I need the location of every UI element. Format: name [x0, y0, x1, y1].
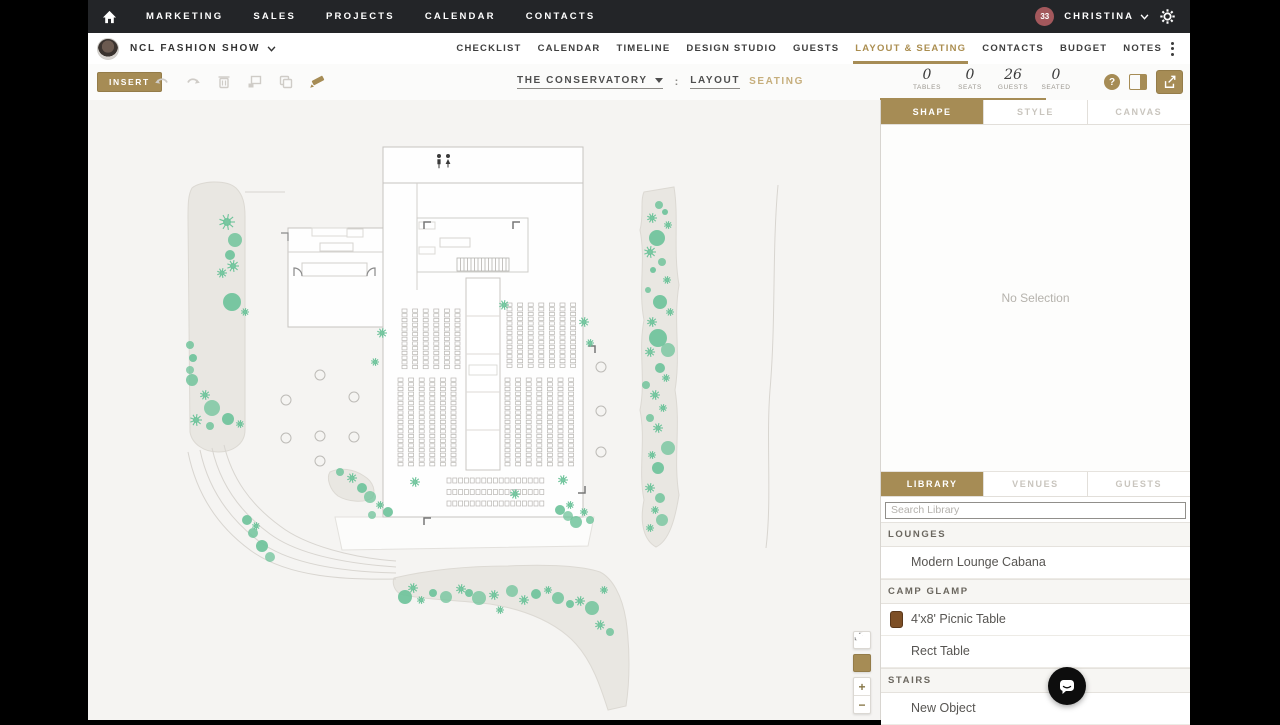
library-search-input[interactable]	[885, 502, 1186, 519]
floorplan-canvas[interactable]: + −	[88, 100, 880, 720]
annex-building[interactable]	[281, 228, 383, 327]
canvas-zoom-controls: + −	[853, 631, 871, 714]
tab-calendar[interactable]: CALENDAR	[538, 33, 601, 64]
pencil-icon	[308, 74, 325, 90]
venue-name: THE CONSERVATORY	[517, 75, 648, 86]
home-icon	[102, 10, 117, 24]
caret-down-icon	[655, 78, 663, 83]
grab-tool-button[interactable]	[853, 654, 871, 672]
tab-budget[interactable]: BUDGET	[1060, 33, 1107, 64]
separator: :	[675, 76, 679, 88]
chat-bubble-icon	[1057, 676, 1077, 696]
user-avatar-badge[interactable]: 33	[1035, 7, 1054, 26]
zoom-out-button[interactable]: −	[854, 696, 870, 713]
inspector-empty-state: No Selection	[881, 125, 1190, 472]
nav-item-calendar[interactable]: CALENDAR	[425, 11, 496, 22]
no-selection-text: No Selection	[1001, 291, 1069, 305]
layout-stats: 0 TABLES 0 SEATS 26 GUESTS 0 SEATED	[910, 68, 1073, 91]
main-nav-items: MARKETING SALES PROJECTS CALENDAR CONTAC…	[146, 11, 595, 22]
nav-item-projects[interactable]: PROJECTS	[326, 11, 395, 22]
tab-guests-library[interactable]: GUESTS	[1088, 472, 1190, 496]
pan-tool-icon	[853, 631, 865, 643]
tab-contacts[interactable]: CONTACTS	[982, 33, 1044, 64]
tab-design-studio[interactable]: DESIGN STUDIO	[686, 33, 777, 64]
arrange-button[interactable]	[243, 69, 266, 94]
main-area: + − SHAPE STYLE CANVAS No Selection LIBR…	[88, 100, 1190, 720]
duplicate-button[interactable]	[274, 69, 297, 94]
tab-shape[interactable]: SHAPE	[881, 100, 984, 124]
event-avatar[interactable]	[97, 38, 119, 60]
layout-view-link[interactable]: LAYOUT	[690, 75, 740, 89]
toolbar-right-icons: ?	[1104, 70, 1183, 94]
panel-toggle-button[interactable]	[1129, 74, 1147, 90]
venue-selector[interactable]: THE CONSERVATORY	[517, 75, 663, 89]
duplicate-icon	[279, 75, 293, 89]
user-name: CHRISTINA	[1064, 11, 1134, 22]
tab-style[interactable]: STYLE	[984, 100, 1087, 124]
redo-button[interactable]	[181, 69, 204, 94]
nav-item-marketing[interactable]: MARKETING	[146, 11, 223, 22]
runway[interactable]	[466, 278, 500, 470]
edit-icons	[150, 69, 328, 94]
chevron-down-icon	[267, 46, 276, 52]
library-item-label: 4'x8' Picnic Table	[911, 612, 1006, 626]
gear-icon[interactable]	[1159, 8, 1176, 25]
tab-library[interactable]: LIBRARY	[881, 472, 984, 496]
library-item-modern-lounge-cabana[interactable]: Modern Lounge Cabana	[881, 547, 1190, 579]
event-name: NCL FASHION SHOW	[130, 43, 260, 54]
venue-view-controls: THE CONSERVATORY : LAYOUT SEATING	[517, 64, 804, 100]
app-window: MARKETING SALES PROJECTS CALENDAR CONTAC…	[88, 0, 1190, 720]
zoom-in-button[interactable]: +	[854, 678, 870, 696]
tab-venues[interactable]: VENUES	[984, 472, 1087, 496]
library-list: LOUNGES Modern Lounge Cabana CAMP GLAMP …	[881, 522, 1190, 725]
library-search	[881, 497, 1190, 522]
event-selector[interactable]: NCL FASHION SHOW	[130, 43, 276, 54]
undo-icon	[154, 75, 170, 89]
seating-view-link[interactable]: SEATING	[749, 76, 804, 89]
library-item-picnic-table[interactable]: 4'x8' Picnic Table	[881, 604, 1190, 636]
library-section-lounges: LOUNGES	[881, 522, 1190, 547]
redo-icon	[185, 75, 201, 89]
stat-seated: 0 SEATED	[1039, 68, 1073, 91]
zoom-buttons: + −	[853, 677, 871, 714]
help-button[interactable]: ?	[1104, 74, 1120, 90]
inspector-tabs: SHAPE STYLE CANVAS	[881, 100, 1190, 125]
share-icon	[1162, 75, 1177, 89]
library-section-stairs: STAIRS	[881, 668, 1190, 693]
tab-guests[interactable]: GUESTS	[793, 33, 839, 64]
top-nav: MARKETING SALES PROJECTS CALENDAR CONTAC…	[88, 0, 1190, 33]
undo-button[interactable]	[150, 69, 173, 94]
trash-icon	[217, 74, 231, 89]
event-overflow-menu[interactable]	[1164, 40, 1180, 58]
export-button[interactable]	[1156, 70, 1183, 94]
stat-seats: 0 SEATS	[953, 68, 987, 91]
library-item-rect-table[interactable]: Rect Table	[881, 636, 1190, 668]
building-apron	[335, 517, 594, 550]
stat-tables: 0 TABLES	[910, 68, 944, 91]
event-tabs: CHECKLIST CALENDAR TIMELINE DESIGN STUDI…	[456, 33, 1162, 64]
intercom-chat-button[interactable]	[1048, 667, 1086, 705]
arrange-icon	[247, 75, 262, 89]
home-button[interactable]	[98, 6, 120, 28]
draw-button[interactable]	[305, 69, 328, 94]
right-panel: SHAPE STYLE CANVAS No Selection LIBRARY …	[880, 100, 1190, 720]
library-tabs: LIBRARY VENUES GUESTS	[881, 472, 1190, 497]
chevron-down-icon	[1140, 14, 1149, 20]
library-section-camp-glamp: CAMP GLAMP	[881, 579, 1190, 604]
picnic-table-icon	[890, 611, 903, 628]
nav-item-sales[interactable]: SALES	[253, 11, 296, 22]
nav-item-contacts[interactable]: CONTACTS	[526, 11, 596, 22]
top-nav-right: 33 CHRISTINA	[1035, 7, 1190, 26]
stat-guests: 26 GUESTS	[996, 68, 1030, 91]
tab-canvas[interactable]: CANVAS	[1088, 100, 1190, 124]
tab-timeline[interactable]: TIMELINE	[616, 33, 670, 64]
delete-button[interactable]	[212, 69, 235, 94]
canvas-toolbar: INSERT	[88, 64, 1190, 101]
tab-layout-seating[interactable]: LAYOUT & SEATING	[855, 33, 966, 64]
tab-checklist[interactable]: CHECKLIST	[456, 33, 521, 64]
event-bar: NCL FASHION SHOW CHECKLIST CALENDAR TIME…	[88, 33, 1190, 65]
tab-notes[interactable]: NOTES	[1123, 33, 1162, 64]
user-menu[interactable]: CHRISTINA	[1064, 11, 1149, 22]
